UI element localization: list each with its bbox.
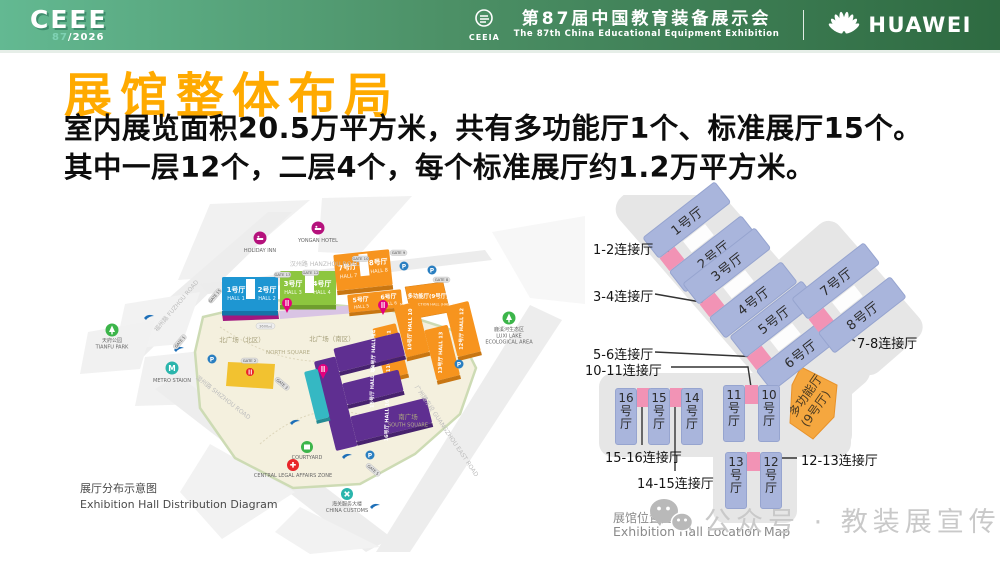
svg-text:P: P (430, 267, 435, 274)
connector-10-11 (745, 385, 758, 404)
hall-location-diagram: 多功能厅 (9号厅) 1号厅 2号厅 3号厅 4号厅 (585, 195, 1000, 540)
svg-text:P: P (368, 452, 373, 459)
hall-11: 11号厅 (723, 385, 745, 442)
connector-12-13 (747, 452, 760, 471)
svg-text:P: P (402, 263, 407, 270)
svg-text:北广场（南区）: 北广场（南区） (309, 334, 355, 343)
intro-text: 室内展览面积20.5万平方米，共有多功能厅1个、标准展厅15个。 其中一层12个… (64, 110, 976, 188)
hall-16: 16号厅 (615, 388, 637, 445)
huawei-logo: HUAWEI (828, 11, 972, 39)
svg-text:16号厅 HALL 16: 16号厅 HALL 16 (383, 399, 391, 441)
svg-text:GATE 10: GATE 10 (352, 256, 369, 261)
svg-text:4号厅: 4号厅 (313, 279, 332, 288)
left-map-caption-en: Exhibition Hall Distribution Diagram (80, 498, 278, 511)
event-title: 第87届中国教育装备展示会 The 87th China Educational… (514, 10, 780, 40)
svg-text:GATE 9: GATE 9 (392, 250, 406, 255)
svg-text:SOUTH SQUARE: SOUTH SQUARE (388, 423, 428, 429)
header-underline (0, 50, 1000, 53)
svg-text:GATE 8: GATE 8 (435, 277, 449, 282)
label-connector-3-4: 3-4连接厅 (593, 286, 653, 305)
ceeia-logo: CEEIA (469, 8, 500, 42)
area-badge: 3600㎡ (256, 323, 275, 329)
svg-text:CENTRAL LEGAL AFFAIRS ZONE: CENTRAL LEGAL AFFAIRS ZONE (254, 473, 332, 479)
svg-text:METRO STAION: METRO STAION (153, 378, 191, 384)
svg-text:多功能厅(9号厅): 多功能厅(9号厅) (407, 292, 448, 300)
ceeia-icon (474, 8, 494, 32)
svg-text:10号厅 HALL 10: 10号厅 HALL 10 (406, 308, 414, 350)
wechat-watermark: 公众号 · 教装展宣传 (648, 495, 1000, 543)
svg-text:鹿溪河生态区: 鹿溪河生态区 (494, 326, 524, 333)
svg-text:15号厅 HALL 15: 15号厅 HALL 15 (368, 366, 376, 408)
ceee-logo-edition: 87/2026 (52, 33, 108, 43)
label-connector-7-8: 7-8连接厅 (857, 333, 917, 352)
label-connector-15-16: 15-16连接厅 (605, 447, 682, 466)
svg-text:GATE 12: GATE 12 (302, 270, 319, 275)
svg-text:HALL 4: HALL 4 (313, 290, 331, 296)
hall-14: 14号厅 (681, 388, 703, 445)
header: CEEE 87/2026 CEEIA 第87届中国教育装备展示会 The 87t… (0, 0, 1000, 50)
svg-text:2号厅: 2号厅 (258, 285, 277, 294)
intro-line-2: 其中一层12个，二层4个，每个标准展厅约1.2万平方米。 (64, 149, 976, 188)
svg-text:HALL 2: HALL 2 (258, 296, 276, 302)
huawei-label: HUAWEI (868, 13, 972, 37)
slide: CEEE 87/2026 CEEIA 第87届中国教育装备展示会 The 87t… (0, 0, 1000, 562)
huawei-flower-icon (828, 11, 860, 39)
svg-text:TIANFU PARK: TIANFU PARK (95, 345, 129, 351)
svg-text:YONGAN HOTEL: YONGAN HOTEL (297, 238, 338, 244)
svg-text:3600㎡: 3600㎡ (259, 324, 272, 329)
header-divider (803, 10, 804, 40)
exhibition-distribution-map: 3600㎡ 1号厅 HALL 1 2号厅 HALL 2 3号厅 HALL 3 4… (60, 192, 585, 554)
event-title-cn: 第87届中国教育装备展示会 (522, 10, 772, 30)
food-court-parcel (226, 362, 275, 389)
label-connector-14-15: 14-15连接厅 (637, 473, 714, 492)
svg-text:M: M (168, 364, 175, 373)
header-right: CEEIA 第87届中国教育装备展示会 The 87th China Educa… (469, 8, 972, 42)
ceeia-label: CEEIA (469, 33, 500, 42)
ceee-logo-text: CEEE (30, 7, 108, 32)
svg-text:6号厅: 6号厅 (380, 292, 397, 302)
svg-text:南广场: 南广场 (398, 412, 418, 421)
svg-text:HOLIDAY INN: HOLIDAY INN (244, 248, 277, 254)
wechat-icon (648, 495, 696, 543)
svg-text:HALL 3: HALL 3 (284, 290, 302, 296)
label-connector-10-11: 10-11连接厅 (585, 360, 662, 379)
svg-text:CHINA CUSTOMS: CHINA CUSTOMS (326, 508, 368, 514)
svg-text:海关服务大楼: 海关服务大楼 (332, 501, 362, 508)
svg-text:P: P (210, 356, 215, 363)
poi-china-customs: 海关服务大楼 CHINA CUSTOMS (326, 488, 368, 514)
svg-text:5号厅: 5号厅 (352, 295, 369, 305)
label-connector-12-13: 12-13连接厅 (801, 450, 878, 469)
svg-text:天府公园: 天府公园 (102, 337, 122, 344)
svg-text:ECOLOGICAL AREA: ECOLOGICAL AREA (485, 340, 533, 346)
svg-text:12号厅 HALL 12: 12号厅 HALL 12 (458, 307, 466, 349)
svg-text:P: P (457, 361, 462, 368)
event-title-en: The 87th China Educational Equipment Exh… (514, 30, 780, 40)
svg-text:14号厅 HALL 14: 14号厅 HALL 14 (370, 329, 378, 371)
svg-text:NORTH SQUARE: NORTH SQUARE (266, 350, 311, 356)
label-connector-1-2: 1-2连接厅 (593, 239, 653, 258)
svg-text:GATE 2: GATE 2 (243, 358, 257, 363)
hall-1-2-block: 1号厅 HALL 1 2号厅 HALL 2 (222, 277, 278, 316)
svg-text:13号厅 HALL 13: 13号厅 HALL 13 (437, 331, 445, 373)
ceee-logo: CEEE 87/2026 (30, 7, 108, 43)
hall-15: 15号厅 (648, 388, 670, 445)
hall-10: 10号厅 (758, 385, 780, 442)
intro-line-1: 室内展览面积20.5万平方米，共有多功能厅1个、标准展厅15个。 (64, 110, 976, 149)
left-map-caption-cn: 展厅分布示意图 (80, 481, 157, 495)
svg-text:3号厅: 3号厅 (284, 279, 303, 288)
svg-text:北广场（北区）: 北广场（北区） (219, 335, 265, 344)
svg-text:汉州路 HANZHOU ROAD: 汉州路 HANZHOU ROAD (290, 260, 361, 268)
watermark-text: 公众号 · 教装展宣传 (704, 500, 1000, 539)
svg-text:GATE 13: GATE 13 (274, 272, 291, 277)
svg-text:1号厅: 1号厅 (227, 285, 246, 294)
svg-text:HALL 1: HALL 1 (227, 296, 245, 302)
